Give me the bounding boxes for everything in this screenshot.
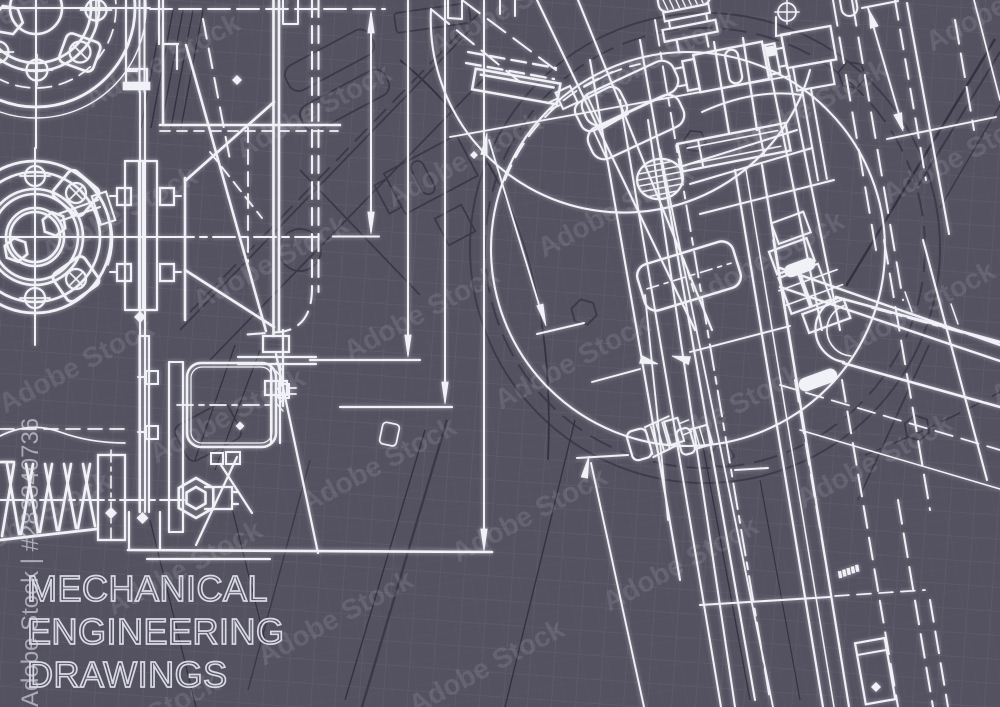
svg-text:DRAWINGS: DRAWINGS <box>27 654 228 695</box>
svg-text:MECHANICAL: MECHANICAL <box>27 568 268 609</box>
svg-text:ENGINEERING: ENGINEERING <box>27 611 285 652</box>
